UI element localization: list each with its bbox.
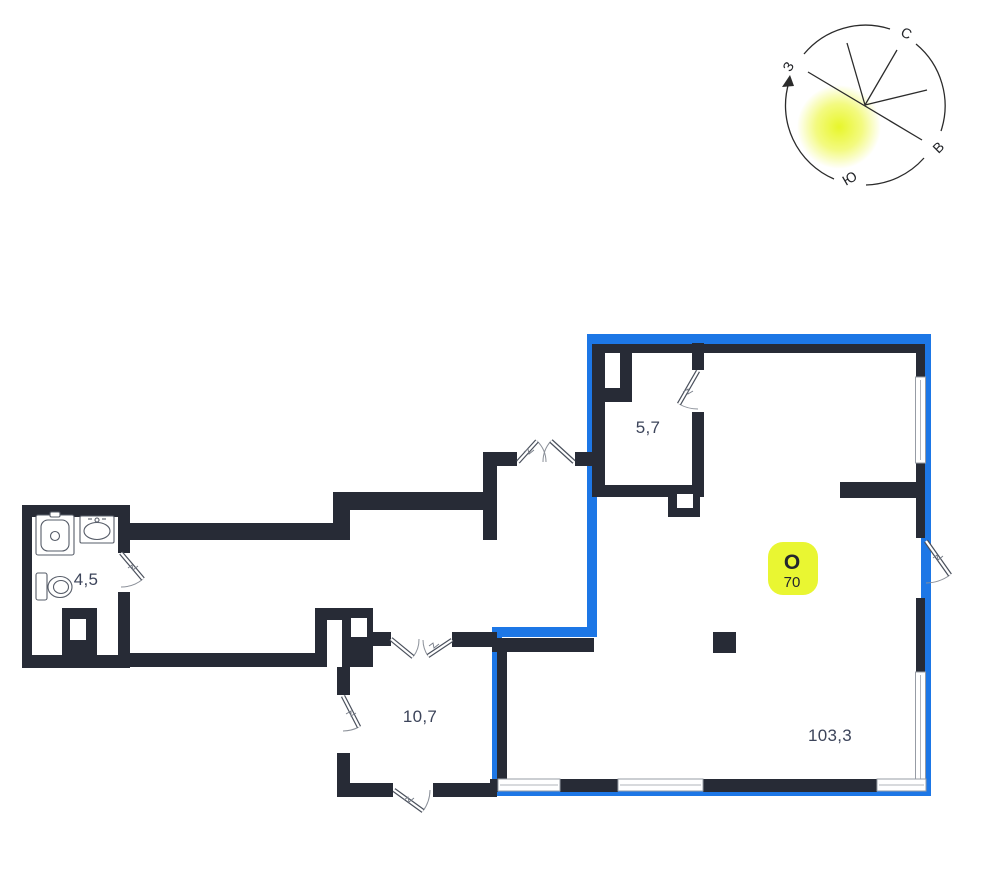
door-hall-double — [391, 639, 452, 657]
room-area-label-bathroom: 4,5 — [74, 570, 99, 589]
room-area-label-hall: 10,7 — [403, 707, 437, 726]
compass-letter-east: В — [929, 138, 947, 156]
compass-ray — [865, 90, 927, 105]
sink-icon — [36, 512, 74, 555]
door-hall-bottom — [394, 790, 430, 811]
toilet-icon — [36, 573, 72, 600]
compass-ray — [865, 50, 897, 105]
washbasin-icon — [80, 516, 114, 543]
unit-badge-number: 70 — [784, 574, 801, 591]
compass-arrowhead-icon — [782, 75, 794, 87]
floor-plan-canvas: С В Ю З — [0, 0, 981, 876]
unit-badge-letter: О — [784, 551, 800, 574]
room-area-label-main-room: 103,3 — [808, 726, 852, 745]
door-bathroom — [121, 553, 143, 587]
compass-letter-west: З — [779, 59, 797, 74]
door-room-top — [679, 371, 698, 409]
compass-arc — [804, 25, 890, 54]
unit-badge[interactable]: О 70 — [768, 542, 818, 595]
compass-letter-south: Ю — [839, 168, 859, 189]
compass-arc — [916, 44, 945, 131]
compass-arc — [866, 158, 924, 185]
compass-rose: С В Ю З — [779, 24, 947, 189]
room-area-label-room-top: 5,7 — [636, 418, 661, 437]
compass-letter-north: С — [898, 24, 914, 43]
compass-sun-glow — [797, 85, 881, 169]
apartment-highlight-outline[interactable] — [497, 339, 926, 791]
windows — [498, 377, 926, 791]
column — [713, 632, 736, 653]
doors — [121, 371, 950, 811]
door-corridor-double — [518, 441, 574, 462]
room-labels: 4,5 5,7 10,7 103,3 — [74, 418, 852, 745]
door-hall-left — [343, 696, 359, 731]
